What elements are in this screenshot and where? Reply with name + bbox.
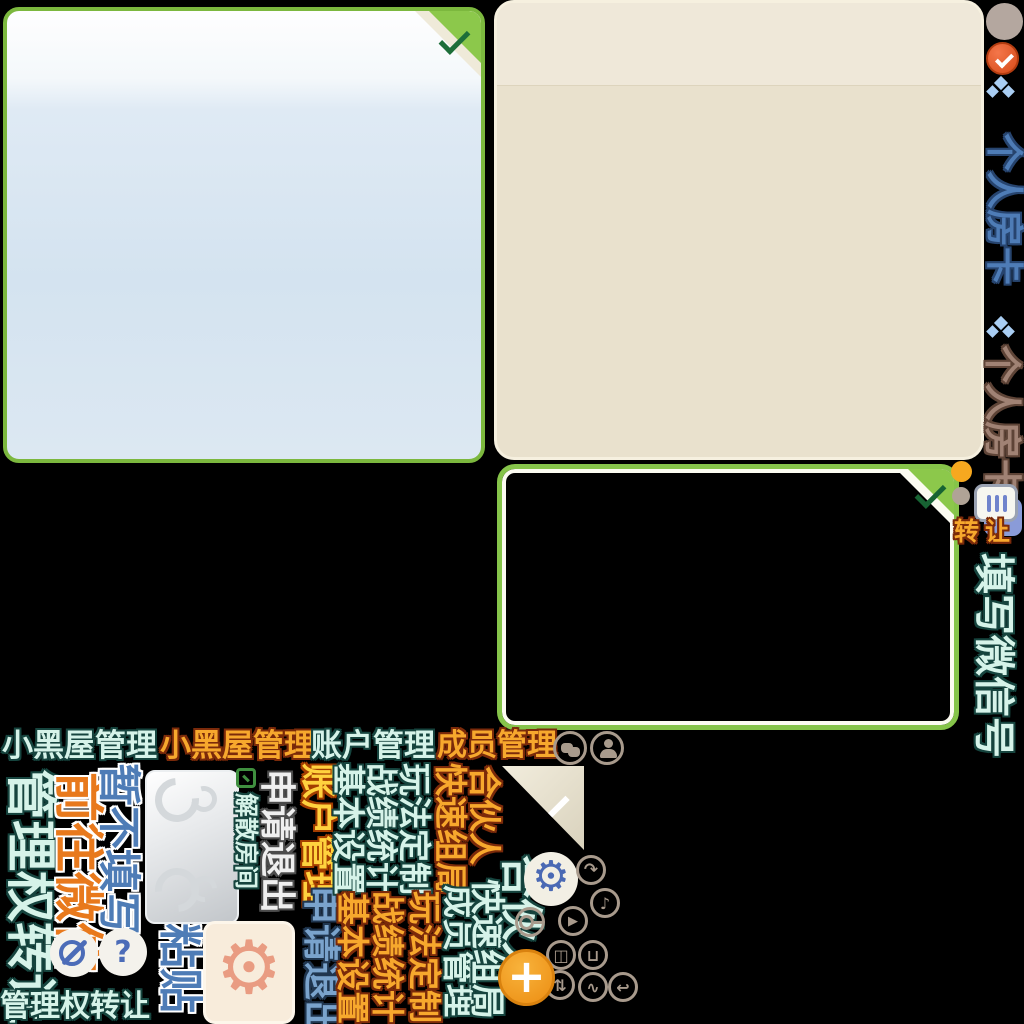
- nav-member-management[interactable]: 成员管理: [437, 731, 557, 761]
- menu-basic-settings-alt[interactable]: 基本设置: [336, 892, 369, 1024]
- member-icon[interactable]: [590, 731, 624, 765]
- nav-blackroom-management-active[interactable]: 小黑屋管理: [160, 731, 315, 762]
- corner-fold-beige: [502, 766, 584, 850]
- checkmark-icon: [534, 787, 569, 822]
- alert-check-badge[interactable]: [986, 42, 1019, 75]
- skip-fill-button[interactable]: 暂不填写: [96, 763, 139, 935]
- gear-icon: ⚙: [532, 852, 570, 901]
- mgmt-transfer-title-bottom: 管理权转让: [0, 992, 150, 1022]
- settings-gear-button[interactable]: ⚙: [524, 852, 578, 906]
- chat-icon[interactable]: [553, 731, 587, 765]
- dialog-panel-light: [3, 7, 485, 463]
- nav-blackroom-management[interactable]: 小黑屋管理: [2, 731, 157, 762]
- pot-icon[interactable]: ⊔: [578, 940, 608, 970]
- checkmark-icon: [995, 49, 1014, 68]
- panel-corner-fold: [896, 469, 954, 527]
- tab-personal-room-card-inactive[interactable]: 个人房卡: [983, 345, 1021, 497]
- orange-dot: [951, 461, 972, 482]
- collapse-arrow-icon[interactable]: [988, 318, 1014, 338]
- collapse-arrow-icon[interactable]: [988, 78, 1014, 98]
- back-icon[interactable]: ↩: [608, 972, 638, 1002]
- dismiss-room-icon[interactable]: [236, 768, 256, 788]
- menu-rules-custom[interactable]: 玩法定制: [398, 763, 431, 895]
- edit-icon[interactable]: [50, 929, 98, 977]
- menu-stats-alt[interactable]: 战绩统计: [371, 891, 404, 1023]
- avatar-placeholder-circle: [986, 3, 1023, 40]
- card-back: [145, 770, 239, 924]
- add-button[interactable]: +: [498, 949, 555, 1006]
- signature-icon[interactable]: ∿: [578, 972, 608, 1002]
- mgmt-transfer-title-vertical: 管理权转让: [4, 769, 55, 1024]
- play-icon[interactable]: ▶: [558, 906, 588, 936]
- apply-exit-button[interactable]: 申请退出: [258, 769, 294, 913]
- menu-rules-custom-alt[interactable]: 玩法定制: [408, 891, 441, 1023]
- panel-header-band: [497, 3, 981, 86]
- gear-icon: ⚙: [216, 924, 282, 1010]
- fill-wechat-title: 填写微信号: [973, 553, 1014, 758]
- help-icon[interactable]: ?: [99, 928, 147, 976]
- redo-icon[interactable]: ↷: [576, 855, 606, 885]
- tab-personal-room-card-active[interactable]: 个人房卡: [985, 133, 1023, 285]
- settings-button-panel[interactable]: ⚙: [203, 921, 295, 1024]
- record-icon[interactable]: ♪: [590, 888, 620, 918]
- paste-button[interactable]: 粘贴: [158, 923, 203, 1013]
- menu-partner[interactable]: 合伙人: [468, 766, 501, 865]
- taupe-dot: [952, 487, 970, 505]
- dismiss-room-button[interactable]: 解散房间: [234, 793, 258, 889]
- menu-quick-game[interactable]: 快速组局: [434, 763, 467, 895]
- panel-corner-fold: [415, 11, 481, 77]
- transfer-button[interactable]: 转让: [954, 519, 1016, 544]
- sprite-sheet: 个人房卡 个人房卡 转让 填写微信号 小黑屋管理 小黑屋管理 账户管理 成员管理…: [0, 0, 1024, 1024]
- menu-basic-settings[interactable]: 基本设置: [332, 763, 365, 895]
- key-icon[interactable]: [515, 907, 545, 937]
- plus-icon: +: [507, 948, 546, 1002]
- dialog-panel-outline: [497, 464, 959, 730]
- dialog-panel-beige: [494, 0, 984, 460]
- menu-stats[interactable]: 战绩统计: [365, 763, 398, 895]
- nav-account-management[interactable]: 账户管理: [311, 731, 435, 762]
